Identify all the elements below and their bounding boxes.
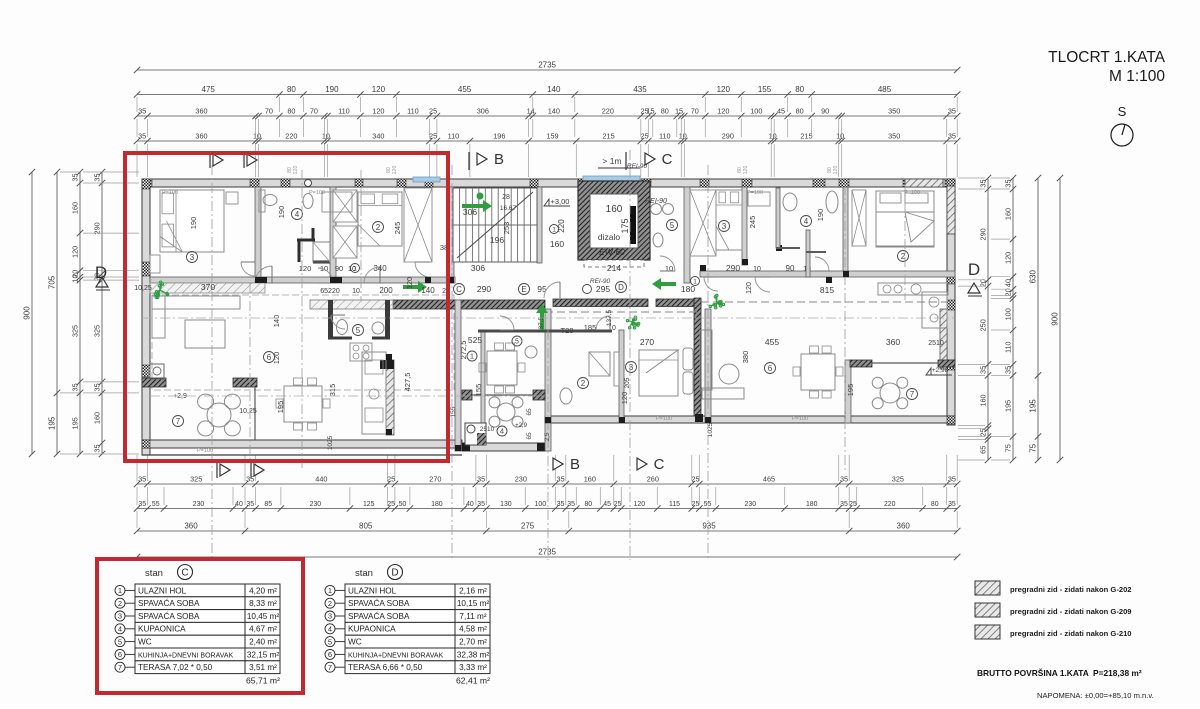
svg-text:100: 100 [535,501,547,508]
svg-text:10,15 m²: 10,15 m² [457,599,490,608]
svg-text:35: 35 [948,107,956,116]
svg-text:P=100: P=100 [656,416,672,422]
svg-text:455: 455 [765,337,779,347]
svg-text:120: 120 [71,246,80,258]
svg-text:BRUTTO POVRŠINA 1.KATA P=218,3: BRUTTO POVRŠINA 1.KATA P=218,38 m² [977,667,1142,678]
svg-text:805: 805 [359,522,373,531]
svg-text:95: 95 [537,284,547,294]
svg-text:+2,9: +2,9 [515,423,528,429]
svg-text:220: 220 [285,132,297,141]
svg-text:125: 125 [363,501,375,508]
svg-text:270: 270 [429,475,441,484]
svg-text:325: 325 [71,325,80,337]
svg-text:290: 290 [979,228,988,240]
svg-text:120: 120 [717,85,731,94]
svg-text:65220: 65220 [320,288,340,295]
svg-text:360: 360 [897,522,911,531]
svg-text:55: 55 [704,501,712,508]
svg-text:KUPAONICA: KUPAONICA [138,625,186,634]
svg-text:50: 50 [399,501,407,508]
svg-text:D: D [618,283,624,292]
svg-text:250: 250 [979,319,988,331]
svg-text:815: 815 [820,285,834,295]
svg-text:10: 10 [608,325,616,332]
svg-text:10: 10 [253,132,261,141]
svg-text:120: 120 [620,392,629,405]
svg-text:155: 155 [758,85,772,94]
svg-text:35: 35 [477,501,485,508]
svg-text:315: 315 [328,384,337,397]
svg-text:306: 306 [463,207,477,217]
svg-text:10: 10 [753,266,761,273]
svg-text:80: 80 [796,107,804,116]
svg-text:215: 215 [603,132,615,141]
svg-text:360: 360 [195,107,207,116]
svg-text:90: 90 [821,107,829,116]
svg-text:10: 10 [679,132,687,141]
svg-text:45: 45 [777,107,785,116]
svg-text:40: 40 [466,501,474,508]
svg-text:360: 360 [195,132,207,141]
svg-text:160: 160 [584,475,596,484]
svg-text:35: 35 [948,501,956,508]
svg-text:120: 120 [299,264,312,273]
svg-text:306: 306 [471,263,485,273]
svg-text:35: 35 [979,179,988,187]
svg-text:ULAZNI HOL: ULAZNI HOL [138,586,187,595]
svg-text:SPAVAĆA SOBA: SPAVAĆA SOBA [138,611,200,621]
svg-text:195: 195 [48,416,57,430]
svg-text:C: C [662,151,673,168]
svg-text:350: 350 [888,132,900,141]
svg-text:195: 195 [1029,399,1038,413]
svg-text:D: D [391,568,398,579]
svg-text:55: 55 [152,501,160,508]
svg-text:S: S [1118,104,1127,119]
svg-text:SPAVAĆA SOBA: SPAVAĆA SOBA [348,598,410,608]
svg-text:35: 35 [246,501,254,508]
svg-text:4: 4 [804,217,809,226]
svg-text:P=100: P=100 [792,416,808,422]
svg-text:> 1m: > 1m [602,156,621,166]
svg-text:290: 290 [726,263,740,273]
svg-text:35: 35 [93,444,102,452]
svg-text:370: 370 [201,282,215,292]
svg-text:100: 100 [750,107,762,116]
svg-text:E: E [521,285,526,294]
svg-text:KUHINJA+DNEVNI BORAVAK: KUHINJA+DNEVNI BORAVAK [348,652,444,659]
svg-text:5: 5 [670,221,675,230]
svg-text:2: 2 [118,599,122,608]
svg-text:900: 900 [23,306,32,320]
svg-text:440: 440 [315,475,327,484]
svg-text:35: 35 [246,475,254,484]
svg-text:65: 65 [526,432,533,440]
svg-text:35: 35 [979,366,988,374]
svg-text:7,11 m²: 7,11 m² [459,612,486,621]
svg-text:160: 160 [93,412,102,424]
svg-text:SPAVAĆA SOBA: SPAVAĆA SOBA [138,598,200,608]
svg-text:160: 160 [1004,208,1013,220]
svg-text:10: 10 [352,288,360,295]
svg-text:120: 120 [407,277,414,289]
svg-text:25: 25 [692,501,700,508]
svg-text:2735: 2735 [538,61,556,70]
svg-text:5: 5 [118,637,122,646]
svg-text:25: 25 [691,475,699,484]
svg-text:485: 485 [878,85,892,94]
svg-text:6: 6 [768,364,773,373]
svg-text:1: 1 [693,278,697,285]
svg-text:4: 4 [328,625,332,634]
svg-text:25: 25 [640,132,648,141]
svg-text:190: 190 [277,206,286,219]
svg-text:85: 85 [264,501,272,508]
svg-text:325: 325 [190,475,202,484]
svg-text:EW-60: EW-60 [599,247,625,257]
svg-text:253: 253 [502,222,511,235]
svg-text:120: 120 [293,166,299,175]
svg-text:120: 120 [717,107,729,116]
svg-text:110: 110 [659,132,671,141]
svg-text:4,58 m²: 4,58 m² [459,625,487,634]
svg-text:185: 185 [584,323,597,332]
svg-text:6: 6 [118,650,122,659]
svg-text:220: 220 [602,107,614,116]
svg-text:3: 3 [118,612,122,621]
svg-text:+2,98: +2,98 [932,367,949,374]
svg-text:10: 10 [769,132,777,141]
svg-text:C: C [654,456,665,473]
svg-text:360: 360 [886,337,900,347]
svg-text:230: 230 [310,501,322,508]
svg-text:75: 75 [1029,443,1038,452]
svg-text:120: 120 [746,282,753,294]
svg-text:5: 5 [356,326,361,335]
svg-text:120: 120 [833,166,839,175]
svg-text:25: 25 [979,429,988,437]
svg-text:3: 3 [190,253,195,262]
svg-text:215: 215 [800,132,812,141]
svg-text:25: 25 [429,132,437,141]
svg-text:35: 35 [71,173,80,181]
svg-text:195: 195 [71,417,80,429]
svg-text:290: 290 [93,222,102,234]
svg-text:525: 525 [468,335,482,345]
svg-text:195: 195 [276,401,285,414]
svg-text:32,15 m²: 32,15 m² [247,650,280,659]
svg-text:6: 6 [267,353,272,362]
svg-text:120: 120 [743,166,749,175]
svg-text:175: 175 [620,218,630,233]
svg-text:80: 80 [287,107,295,116]
svg-text:pregradni zid - zidati nakon G: pregradni zid - zidati nakon G-209 [1010,607,1132,616]
svg-text:427,5: 427,5 [403,373,412,392]
svg-text:+2,9: +2,9 [173,393,187,400]
svg-text:pregradni zid - zidati nakon G: pregradni zid - zidati nakon G-210 [1010,629,1132,638]
svg-text:+3,00: +3,00 [551,197,570,206]
svg-text:3: 3 [722,222,727,231]
svg-text:7: 7 [176,417,181,426]
svg-text:10,25: 10,25 [239,408,257,415]
svg-text:2,16 m²: 2,16 m² [459,586,487,595]
svg-text:180: 180 [431,501,443,508]
svg-text:465: 465 [763,475,775,484]
svg-text:295: 295 [596,284,610,294]
svg-text:KUHINJA+DNEVNI BORAVAK: KUHINJA+DNEVNI BORAVAK [138,652,234,659]
svg-text:3,33 m²: 3,33 m² [459,663,487,672]
svg-text:245: 245 [748,216,757,229]
svg-text:7: 7 [328,663,332,672]
svg-text:155: 155 [474,384,483,397]
svg-text:900: 900 [1051,312,1060,326]
svg-text:3,51 m²: 3,51 m² [249,663,277,672]
svg-text:35: 35 [948,475,956,484]
svg-text:M 1:100: M 1:100 [1109,68,1165,85]
svg-text:120: 120 [634,501,646,508]
svg-text:275: 275 [521,522,535,531]
svg-text:35: 35 [557,501,565,508]
svg-text:196: 196 [490,235,504,245]
svg-text:25: 25 [387,501,395,508]
svg-text:140: 140 [548,107,560,116]
svg-text:ULAZNI HOL: ULAZNI HOL [348,586,397,595]
svg-text:2,70 m²: 2,70 m² [459,638,487,647]
svg-text:35: 35 [840,501,848,508]
svg-text:630: 630 [1029,269,1038,283]
svg-text:130: 130 [500,501,512,508]
svg-text:290: 290 [477,284,491,294]
svg-text:T20: T20 [561,326,574,335]
svg-text:SPAVAĆA SOBA: SPAVAĆA SOBA [348,611,410,621]
svg-text:P=100: P=100 [309,190,325,196]
svg-text:70: 70 [310,107,318,116]
svg-text:10: 10 [71,274,80,282]
svg-text:10,25: 10,25 [134,285,152,292]
svg-text:16,67: 16,67 [500,205,517,212]
svg-text:360: 360 [184,522,198,531]
svg-text:pregradni zid - zidati nakon G: pregradni zid - zidati nakon G-202 [1010,585,1132,594]
svg-text:325: 325 [93,325,102,337]
svg-text:WC: WC [348,638,362,647]
svg-text:220: 220 [884,501,896,508]
svg-text:1025: 1025 [327,435,334,450]
svg-text:25: 25 [614,501,622,508]
svg-text:2,5: 2,5 [544,432,551,441]
svg-text:4: 4 [500,427,504,436]
svg-text:P=100: P=100 [162,190,178,196]
svg-text:180: 180 [806,501,818,508]
svg-text:35: 35 [138,132,146,141]
svg-text:25: 25 [429,107,437,116]
svg-text:195: 195 [1004,400,1013,412]
svg-text:195: 195 [846,384,855,397]
svg-text:115: 115 [669,501,680,508]
svg-text:15: 15 [675,107,683,116]
svg-text:245: 245 [393,222,402,235]
svg-text:35: 35 [138,501,146,508]
svg-text:160: 160 [979,394,988,406]
svg-text:110: 110 [338,107,350,116]
svg-text:230: 230 [745,501,757,508]
svg-text:P=100: P=100 [197,448,213,454]
svg-text:75: 75 [1004,444,1013,452]
svg-text:10: 10 [322,132,330,141]
svg-text:120: 120 [372,85,386,94]
svg-text:160: 160 [71,202,80,214]
svg-text:110: 110 [448,132,460,141]
svg-text:2,40 m²: 2,40 m² [249,638,277,647]
svg-text:137,5: 137,5 [538,316,545,333]
svg-text:935: 935 [702,522,716,531]
svg-text:306: 306 [477,107,489,116]
svg-text:1: 1 [552,226,556,233]
svg-text:7: 7 [910,390,915,399]
svg-text:120: 120 [392,166,398,175]
svg-text:8,33 m²: 8,33 m² [249,599,277,608]
svg-text:62,41 m²: 62,41 m² [456,676,490,686]
svg-text:65,71 m²: 65,71 m² [246,676,280,686]
svg-text:435: 435 [633,85,647,94]
svg-text:35: 35 [477,475,485,484]
svg-text:65: 65 [979,446,988,454]
svg-text:25: 25 [387,475,395,484]
svg-text:80: 80 [661,107,669,116]
svg-text:14: 14 [527,107,535,116]
svg-text:70: 70 [691,107,699,116]
svg-text:dizalo: dizalo [598,232,620,242]
svg-text:35: 35 [567,501,575,508]
svg-text:350: 350 [888,107,900,116]
svg-text:455: 455 [458,85,472,94]
svg-text:200: 200 [379,286,393,295]
svg-text:40: 40 [235,501,243,508]
svg-text:35: 35 [138,475,146,484]
svg-text:2: 2 [581,379,586,388]
svg-text:REI-90: REI-90 [590,278,611,285]
svg-text:TLOCRT 1.KATA: TLOCRT 1.KATA [1048,49,1166,66]
svg-text:1: 1 [328,586,332,595]
svg-text:15: 15 [646,107,654,116]
svg-text:35: 35 [1004,366,1013,374]
svg-text:5: 5 [515,339,519,346]
svg-text:214: 214 [607,263,621,273]
svg-text:35: 35 [93,383,102,391]
svg-text:25: 25 [849,501,857,508]
svg-text:10: 10 [836,132,844,141]
svg-text:380: 380 [741,351,750,364]
svg-text:REI-90: REI-90 [645,198,667,205]
svg-text:KUPAONICA: KUPAONICA [348,625,396,634]
svg-text:155: 155 [450,406,457,417]
svg-text:C: C [181,568,188,579]
svg-text:65: 65 [526,408,533,416]
svg-text:stan: stan [355,568,373,579]
svg-text:70: 70 [265,107,273,116]
svg-text:6: 6 [328,650,332,659]
svg-text:B: B [494,151,504,168]
svg-text:4,67 m²: 4,67 m² [249,625,277,634]
svg-text:80: 80 [931,501,939,508]
svg-text:10,45 m²: 10,45 m² [247,612,280,621]
svg-text:140: 140 [421,286,435,295]
svg-text:P=100: P=100 [904,190,920,196]
svg-text:1: 1 [470,352,474,361]
svg-text:3: 3 [328,612,332,621]
svg-text:90: 90 [786,264,795,273]
svg-text:120: 120 [1004,252,1013,264]
svg-text:2510: 2510 [928,340,944,347]
svg-text:35: 35 [840,475,848,484]
svg-text:35: 35 [93,173,102,181]
svg-text:80: 80 [795,85,804,94]
svg-text:32,38 m²: 32,38 m² [457,650,490,659]
svg-text:190: 190 [189,217,198,230]
svg-text:NAPOMENA: ±0,00=+85,10 m.n.v.: NAPOMENA: ±0,00=+85,10 m.n.v. [1037,691,1154,700]
svg-text:4: 4 [295,210,300,219]
svg-text:P=100: P=100 [747,190,763,196]
svg-text:1: 1 [353,265,357,272]
svg-text:190: 190 [816,209,825,222]
svg-text:TERASA 6,66 * 0,50: TERASA 6,66 * 0,50 [348,663,423,672]
svg-text:2: 2 [328,599,332,608]
svg-text:35: 35 [138,107,146,116]
svg-text:190: 190 [325,85,339,94]
svg-text:4,20 m²: 4,20 m² [249,586,277,595]
svg-text:2: 2 [376,223,381,232]
svg-text:110: 110 [1004,341,1013,353]
svg-text:stan: stan [145,568,163,579]
svg-text:35: 35 [948,132,956,141]
svg-text:230: 230 [515,475,527,484]
svg-text:WC: WC [138,638,152,647]
svg-text:340: 340 [372,132,384,141]
svg-text:705: 705 [48,275,57,289]
svg-text:40: 40 [1004,279,1013,287]
svg-text:B: B [570,456,580,473]
svg-text:110: 110 [407,107,419,116]
svg-text:160: 160 [606,204,623,215]
svg-text:28: 28 [502,194,510,201]
svg-text:230: 230 [193,501,205,508]
svg-text:45: 45 [603,501,611,508]
svg-text:120: 120 [372,107,384,116]
svg-text:35: 35 [71,383,80,391]
svg-text:80: 80 [287,85,296,94]
svg-text:159: 159 [546,132,558,141]
svg-text:35: 35 [557,475,565,484]
svg-text:270: 270 [640,337,654,347]
svg-text:325: 325 [892,475,904,484]
svg-text:3: 3 [629,363,634,372]
svg-text:TERASA 7,02 * 0,50: TERASA 7,02 * 0,50 [138,663,213,672]
svg-text:D: D [968,260,980,279]
svg-text:C: C [456,285,462,294]
svg-text:260: 260 [647,475,659,484]
svg-text:475: 475 [202,85,216,94]
svg-text:7: 7 [118,663,122,672]
svg-text:2735: 2735 [538,548,556,557]
svg-text:100: 100 [1004,308,1013,320]
svg-text:196: 196 [493,132,505,141]
svg-text:160: 160 [550,239,564,249]
svg-text:10: 10 [665,264,673,273]
svg-text:4: 4 [118,625,122,634]
svg-text:272,5: 272,5 [459,341,468,360]
svg-text:2510: 2510 [480,426,495,433]
svg-text:5: 5 [328,637,332,646]
svg-text:90: 90 [335,264,343,273]
